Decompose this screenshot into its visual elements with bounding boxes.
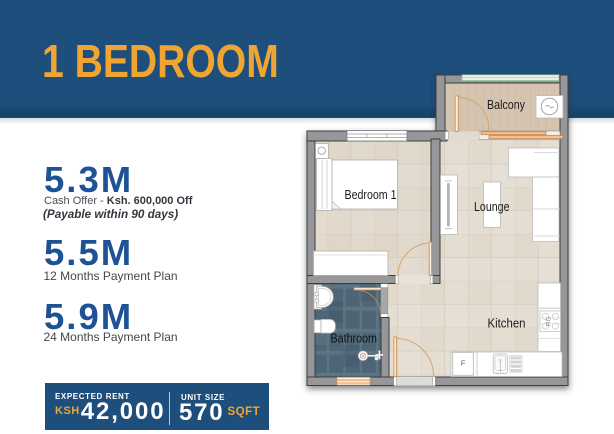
svg-text:RG: RG <box>546 316 553 326</box>
svg-text:F: F <box>461 359 466 368</box>
svg-text:Lounge: Lounge <box>474 199 510 214</box>
svg-text:Kitchen: Kitchen <box>488 316 526 331</box>
svg-text:Bedroom 1: Bedroom 1 <box>345 187 397 202</box>
svg-text:Bathroom: Bathroom <box>331 332 378 346</box>
svg-text:Balcony: Balcony <box>487 98 526 112</box>
